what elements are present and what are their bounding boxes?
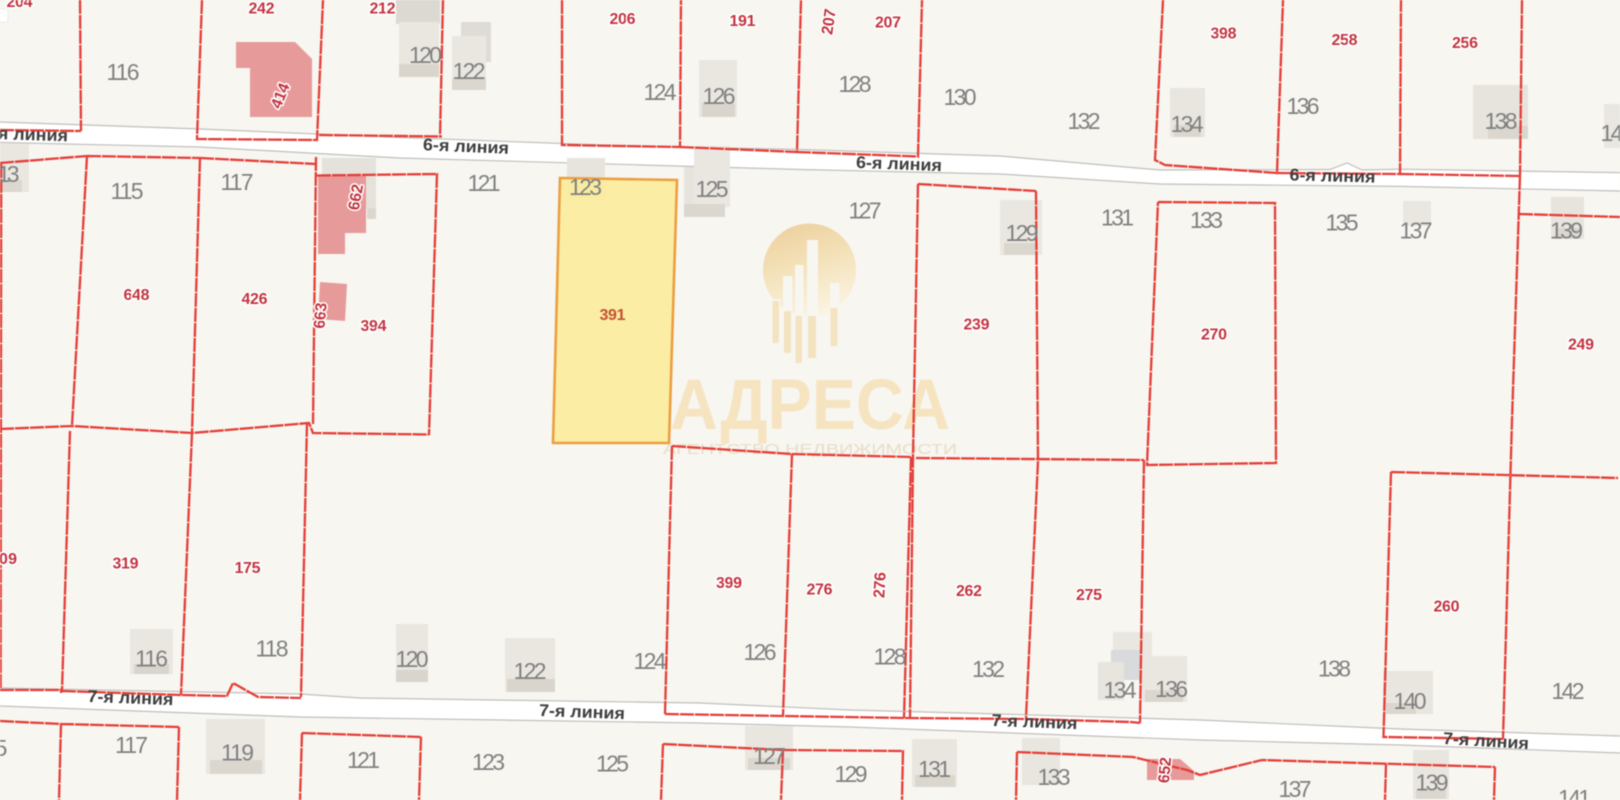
- svg-text:239: 239: [964, 317, 990, 334]
- svg-text:136: 136: [1287, 93, 1320, 119]
- svg-text:139: 139: [1416, 770, 1449, 796]
- svg-text:132: 132: [972, 656, 1005, 682]
- svg-text:120: 120: [396, 646, 429, 672]
- svg-text:132: 132: [1068, 108, 1101, 134]
- svg-text:126: 126: [744, 639, 777, 665]
- svg-text:175: 175: [235, 560, 261, 577]
- svg-text:124: 124: [644, 79, 677, 105]
- svg-text:137: 137: [1400, 218, 1433, 244]
- svg-text:138: 138: [1318, 656, 1351, 682]
- svg-text:134: 134: [1171, 111, 1204, 137]
- svg-text:123: 123: [569, 174, 602, 200]
- svg-text:394: 394: [361, 318, 387, 335]
- svg-text:426: 426: [242, 291, 268, 308]
- svg-text:130: 130: [944, 84, 977, 110]
- svg-text:260: 260: [1434, 599, 1460, 616]
- svg-text:129: 129: [835, 761, 868, 787]
- svg-text:652: 652: [1156, 756, 1175, 783]
- svg-text:13: 13: [0, 161, 20, 187]
- svg-text:270: 270: [1201, 327, 1227, 344]
- svg-text:262: 262: [956, 583, 982, 600]
- svg-text:117: 117: [115, 732, 148, 758]
- svg-text:398: 398: [1211, 26, 1237, 43]
- svg-text:141: 141: [1558, 785, 1591, 800]
- svg-text:АДРЕСА: АДРЕСА: [670, 366, 950, 445]
- svg-text:139: 139: [1550, 218, 1583, 244]
- svg-text:119: 119: [221, 740, 254, 766]
- svg-text:7-я линия: 7-я линия: [991, 711, 1078, 733]
- svg-text:122: 122: [514, 658, 547, 684]
- svg-text:125: 125: [596, 751, 629, 777]
- svg-text:121: 121: [468, 170, 501, 196]
- svg-text:128: 128: [839, 71, 872, 97]
- svg-text:648: 648: [124, 287, 150, 304]
- svg-text:249: 249: [1568, 337, 1594, 354]
- svg-text:207: 207: [819, 8, 839, 36]
- svg-text:276: 276: [807, 582, 833, 599]
- svg-text:133: 133: [1038, 764, 1071, 790]
- svg-text:09: 09: [0, 551, 17, 568]
- svg-text:7-я линия: 7-я линия: [87, 687, 174, 709]
- svg-text:116: 116: [107, 59, 140, 85]
- svg-text:115: 115: [111, 178, 144, 204]
- svg-text:123: 123: [472, 749, 505, 775]
- svg-text:242: 242: [249, 1, 275, 18]
- svg-text:134: 134: [1104, 677, 1137, 703]
- svg-text:137: 137: [1279, 776, 1312, 800]
- svg-text:131: 131: [918, 756, 951, 782]
- svg-text:663: 663: [311, 302, 330, 329]
- svg-text:256: 256: [1452, 35, 1478, 52]
- svg-text:212: 212: [370, 1, 396, 18]
- svg-text:144: 144: [1601, 120, 1620, 146]
- svg-text:126: 126: [703, 83, 736, 109]
- svg-text:129: 129: [1006, 220, 1039, 246]
- svg-text:7-я линия: 7-я линия: [539, 701, 626, 723]
- svg-text:122: 122: [453, 58, 486, 84]
- svg-text:135: 135: [1326, 210, 1359, 236]
- svg-text:6-я линия: 6-я линия: [856, 153, 943, 175]
- svg-text:5: 5: [0, 735, 7, 761]
- svg-text:6-я линия: 6-я линия: [0, 124, 68, 146]
- svg-text:142: 142: [1552, 678, 1585, 704]
- svg-text:128: 128: [874, 644, 907, 670]
- svg-text:125: 125: [696, 176, 729, 202]
- svg-text:127: 127: [753, 743, 786, 769]
- svg-text:275: 275: [1076, 587, 1102, 604]
- svg-text:116: 116: [135, 646, 168, 672]
- svg-text:207: 207: [875, 15, 901, 32]
- svg-text:121: 121: [347, 747, 380, 773]
- svg-text:138: 138: [1485, 108, 1518, 134]
- svg-text:204: 204: [7, 0, 33, 11]
- svg-text:399: 399: [716, 575, 742, 592]
- svg-text:6-я линия: 6-я линия: [423, 135, 510, 158]
- svg-text:140: 140: [1394, 688, 1427, 714]
- svg-text:319: 319: [113, 556, 139, 573]
- svg-text:118: 118: [256, 636, 289, 662]
- svg-text:276: 276: [871, 572, 889, 599]
- svg-text:6-я линия: 6-я линия: [1289, 165, 1375, 186]
- svg-text:206: 206: [610, 11, 636, 28]
- svg-text:120: 120: [409, 42, 442, 68]
- svg-text:258: 258: [1332, 32, 1358, 49]
- svg-text:191: 191: [730, 13, 756, 30]
- svg-text:133: 133: [1190, 207, 1223, 233]
- svg-text:124: 124: [634, 648, 667, 674]
- svg-text:127: 127: [849, 198, 882, 224]
- svg-text:136: 136: [1155, 676, 1188, 702]
- svg-text:117: 117: [221, 169, 254, 195]
- svg-text:391: 391: [600, 307, 626, 324]
- svg-text:131: 131: [1101, 205, 1134, 231]
